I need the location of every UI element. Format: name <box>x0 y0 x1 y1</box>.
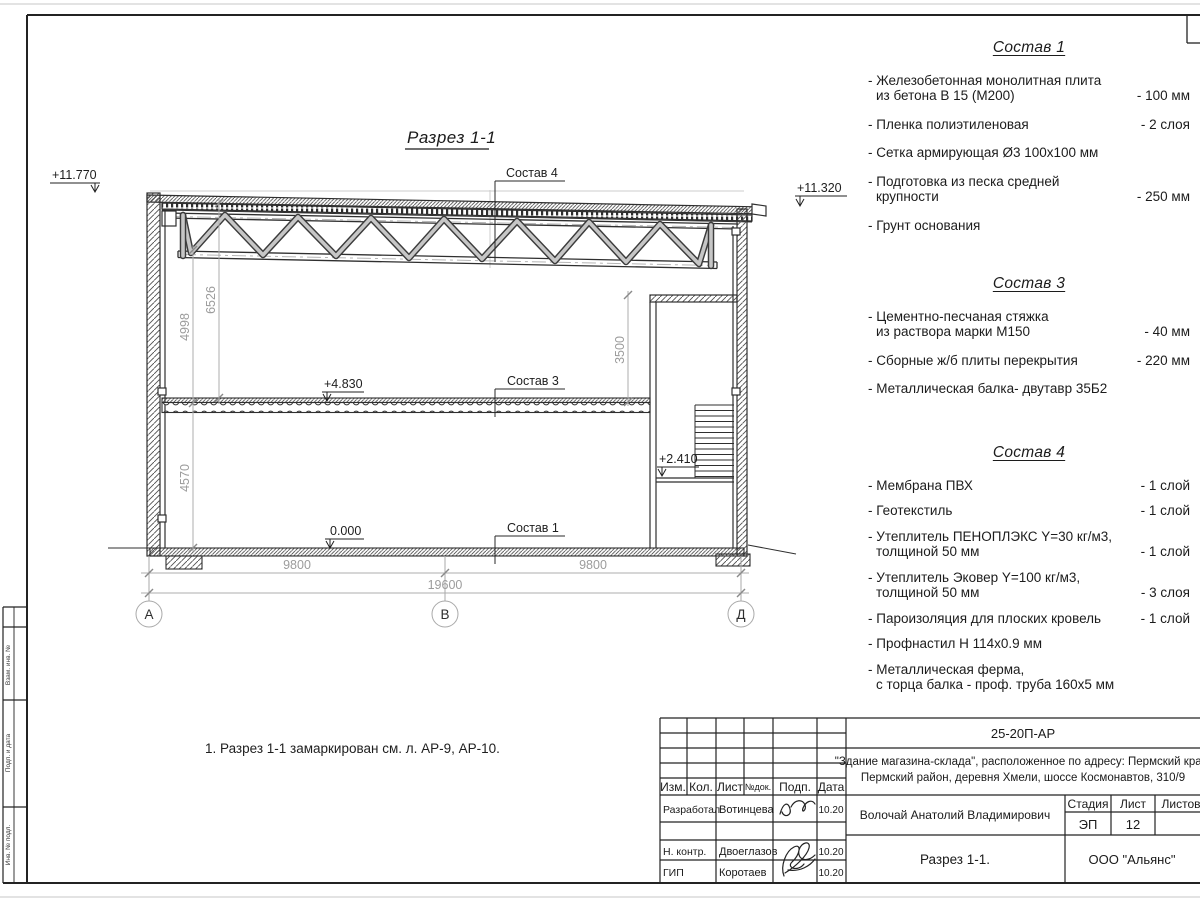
drawing-title: Разрез 1-1 <box>405 128 496 149</box>
side-stamp-labels: Взам. инв. № Подп. и дата Инв. № подл. <box>5 645 12 865</box>
spec-item-text: - Пленка полиэтиленовая <box>868 117 1029 133</box>
signature-developer <box>780 801 815 816</box>
grid-axis-letters: А В Д <box>144 607 745 622</box>
side-stamp-label: Взам. инв. № <box>5 645 12 685</box>
dim-text: 19600 <box>428 578 463 592</box>
drawing-name: Разрез 1-1. <box>920 852 990 867</box>
stage-value: ЭП <box>1079 817 1098 832</box>
row-date: 10.20 <box>818 847 843 858</box>
grade-line-right <box>748 545 796 554</box>
spec-item-text: - Грунт основания <box>868 218 980 234</box>
spec-item-text: - Утеплитель Эковер Y=100 кг/м3,толщиной… <box>868 570 1080 601</box>
sheet-label: Лист <box>1120 797 1147 811</box>
row-name: Коротаев <box>719 867 767 879</box>
spec-item-value: - 220 мм <box>1129 353 1190 369</box>
note-text: 1. Разрез 1-1 замаркирован см. л. АР-9, … <box>205 741 500 756</box>
spec-item-value: - 100 мм <box>1129 88 1190 104</box>
dim-text: 6526 <box>204 286 218 314</box>
dim-text: 4570 <box>178 464 192 492</box>
spec-item-text: - Геотекстиль <box>868 503 952 519</box>
row-role: Разработал <box>663 804 720 816</box>
elevation-value: +4.830 <box>324 377 363 391</box>
stage-label: Стадия <box>1068 797 1109 811</box>
side-stamp-label: Подп. и дата <box>5 733 12 772</box>
layer-label: Состав 3 <box>507 374 559 388</box>
spec-item: - Геотекстиль- 1 слой <box>868 503 1190 519</box>
stair-shaft <box>650 295 737 548</box>
elevation-value: +2.410 <box>659 452 698 466</box>
axis-letter: Д <box>736 607 745 622</box>
spec-items: - Цементно-песчаная стяжкаиз раствора ма… <box>868 309 1190 397</box>
spec-item: - Сетка армирующая Ø3 100x100 мм <box>868 145 1190 161</box>
page-title: Разрез 1-1 <box>407 128 496 147</box>
spec-item: - Цементно-песчаная стяжкаиз раствора ма… <box>868 309 1190 340</box>
row-role: Н. контр. <box>663 846 706 858</box>
spec-item-value: - 1 слой <box>1133 503 1190 519</box>
spec-item-text: - Утеплитель ПЕНОПЛЭКС Y=30 кг/м3,толщин… <box>868 529 1112 560</box>
chief-name: Волочай Анатолий Владимирович <box>860 808 1051 822</box>
elevation-value: +11.770 <box>52 168 97 182</box>
spec-list-sostav-3: Состав 3 - Цементно-песчаная стяжкаиз ра… <box>868 276 1190 410</box>
dim-text: 4998 <box>178 313 192 341</box>
col-header-kol: Кол. <box>689 780 713 794</box>
spec-list-title: Состав 4 <box>868 445 1190 461</box>
spec-item-value: - 40 мм <box>1136 324 1190 340</box>
signatures <box>780 801 815 876</box>
spec-list-sostav-4: Состав 4 - Мембрана ПВХ- 1 слой- Геотекс… <box>868 445 1190 703</box>
dim-text: 3500 <box>613 336 627 364</box>
spec-items: - Мембрана ПВХ- 1 слой- Геотекстиль- 1 с… <box>868 478 1190 693</box>
col-header-podp: Подп. <box>779 780 811 794</box>
dim-text: 9800 <box>579 558 607 572</box>
spec-item-text: - Металлическая балка- двутавр 35Б2 <box>868 381 1107 397</box>
truss-support-bracket <box>162 211 176 226</box>
spec-item: - Металлическая балка- двутавр 35Б2 <box>868 381 1190 397</box>
spec-item-text: - Металлическая ферма,с торца балка - пр… <box>868 662 1114 693</box>
row-name: Двоеглазов <box>719 846 778 858</box>
row-date: 10.20 <box>818 805 843 816</box>
row-name: Вотинцева <box>719 804 774 816</box>
col-header-data: Дата <box>818 780 845 794</box>
right-wall <box>732 209 747 556</box>
layer-label: Состав 1 <box>507 521 559 535</box>
axis-letter: А <box>144 607 153 622</box>
spec-item-text: - Мембрана ПВХ <box>868 478 973 494</box>
spec-item-text: - Железобетонная монолитная плитаиз бето… <box>868 73 1101 104</box>
col-header-list: Лист <box>717 780 744 794</box>
truss-web-members <box>183 215 711 266</box>
spec-item-value: - 1 слой <box>1133 478 1190 494</box>
title-block-texts: 25-20П-АР "Здание магазина-склада", расп… <box>660 726 1200 879</box>
layer-label: Состав 4 <box>506 166 558 180</box>
ground-floor-slab <box>108 545 796 569</box>
spec-item: - Утеплитель Эковер Y=100 кг/м3,толщиной… <box>868 570 1190 601</box>
col-header-izm: Изм. <box>660 780 686 794</box>
spec-list-title: Состав 3 <box>868 276 1190 292</box>
floor-slab-2 <box>162 398 650 413</box>
spec-item: - Утеплитель ПЕНОПЛЭКС Y=30 кг/м3,толщин… <box>868 529 1190 560</box>
spec-item: - Профнастил Н 114x0.9 мм <box>868 636 1190 652</box>
drawing-sheet: Взам. инв. № Подп. и дата Инв. № подл. <box>0 0 1200 900</box>
spec-items: - Железобетонная монолитная плитаиз бето… <box>868 73 1190 234</box>
col-header-ndok: №док. <box>745 782 771 792</box>
row-role: ГИП <box>663 867 684 879</box>
sheet-value: 12 <box>1126 817 1140 832</box>
spec-list-sostav-1: Состав 1 - Железобетонная монолитная пли… <box>868 40 1190 246</box>
spec-item-text: - Сборные ж/б плиты перекрытия <box>868 353 1078 369</box>
axis-letter: В <box>440 607 449 622</box>
object-name-line2: Пермский район, деревня Хмели, шоссе Кос… <box>861 772 1185 784</box>
spec-item-value: - 1 слой <box>1133 611 1190 627</box>
spec-item-value: - 1 слой <box>1133 544 1190 560</box>
spec-item-value: - 250 мм <box>1129 189 1190 205</box>
spec-item: - Пароизоляция для плоских кровель- 1 сл… <box>868 611 1190 627</box>
dim-text: 9800 <box>283 558 311 572</box>
spec-item: - Металлическая ферма,с торца балка - пр… <box>868 662 1190 693</box>
company-name: ООО "Альянс" <box>1089 852 1176 867</box>
spec-item-text: - Пароизоляция для плоских кровель <box>868 611 1101 627</box>
spec-item: - Подготовка из песка среднейкрупности- … <box>868 174 1190 205</box>
spec-item: - Пленка полиэтиленовая- 2 слоя <box>868 117 1190 133</box>
spec-item: - Сборные ж/б плиты перекрытия- 220 мм <box>868 353 1190 369</box>
spec-item: - Мембрана ПВХ- 1 слой <box>868 478 1190 494</box>
spec-item-value: - 3 слоя <box>1133 585 1190 601</box>
spec-list-title: Состав 1 <box>868 40 1190 56</box>
elevation-value: 0.000 <box>330 524 361 538</box>
spec-item: - Грунт основания <box>868 218 1190 234</box>
spec-item: - Железобетонная монолитная плитаиз бето… <box>868 73 1190 104</box>
left-wall <box>147 193 166 556</box>
spec-item-text: - Профнастил Н 114x0.9 мм <box>868 636 1042 652</box>
stair-treads <box>695 405 734 478</box>
side-stamp-label: Инв. № подл. <box>5 825 12 866</box>
spec-item-text: - Цементно-песчаная стяжкаиз раствора ма… <box>868 309 1049 340</box>
object-name-line1: "Здание магазина-склада", расположенное … <box>835 756 1200 768</box>
spec-item-text: - Сетка армирующая Ø3 100x100 мм <box>868 145 1098 161</box>
elevation-value: +11.320 <box>797 181 842 195</box>
row-date: 10.20 <box>818 868 843 879</box>
footing-left <box>166 556 202 569</box>
spec-item-value: - 2 слоя <box>1133 117 1190 133</box>
doc-number: 25-20П-АР <box>991 726 1055 741</box>
spec-item-text: - Подготовка из песка среднейкрупности <box>868 174 1059 205</box>
footing-right <box>716 554 750 566</box>
elevation-marks <box>50 183 847 548</box>
sheets-label: Листов <box>1162 797 1200 811</box>
